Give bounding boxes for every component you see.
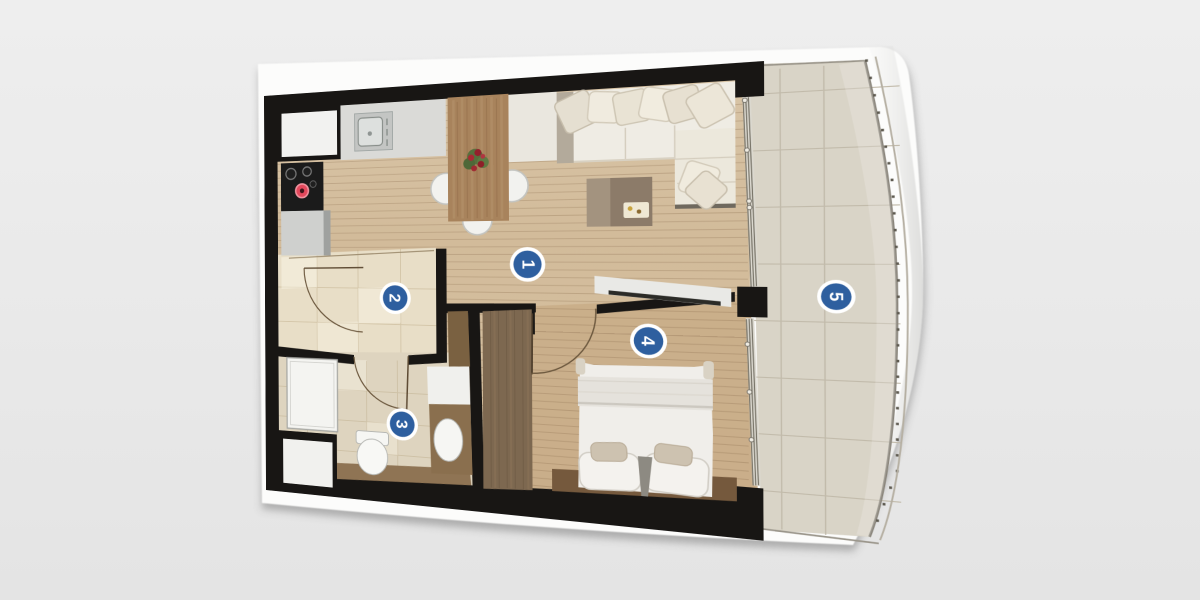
svg-text:1: 1 bbox=[517, 259, 537, 269]
svg-text:5: 5 bbox=[825, 292, 847, 302]
svg-text:2: 2 bbox=[386, 293, 404, 303]
svg-text:4: 4 bbox=[638, 336, 660, 347]
svg-text:3: 3 bbox=[393, 419, 411, 430]
